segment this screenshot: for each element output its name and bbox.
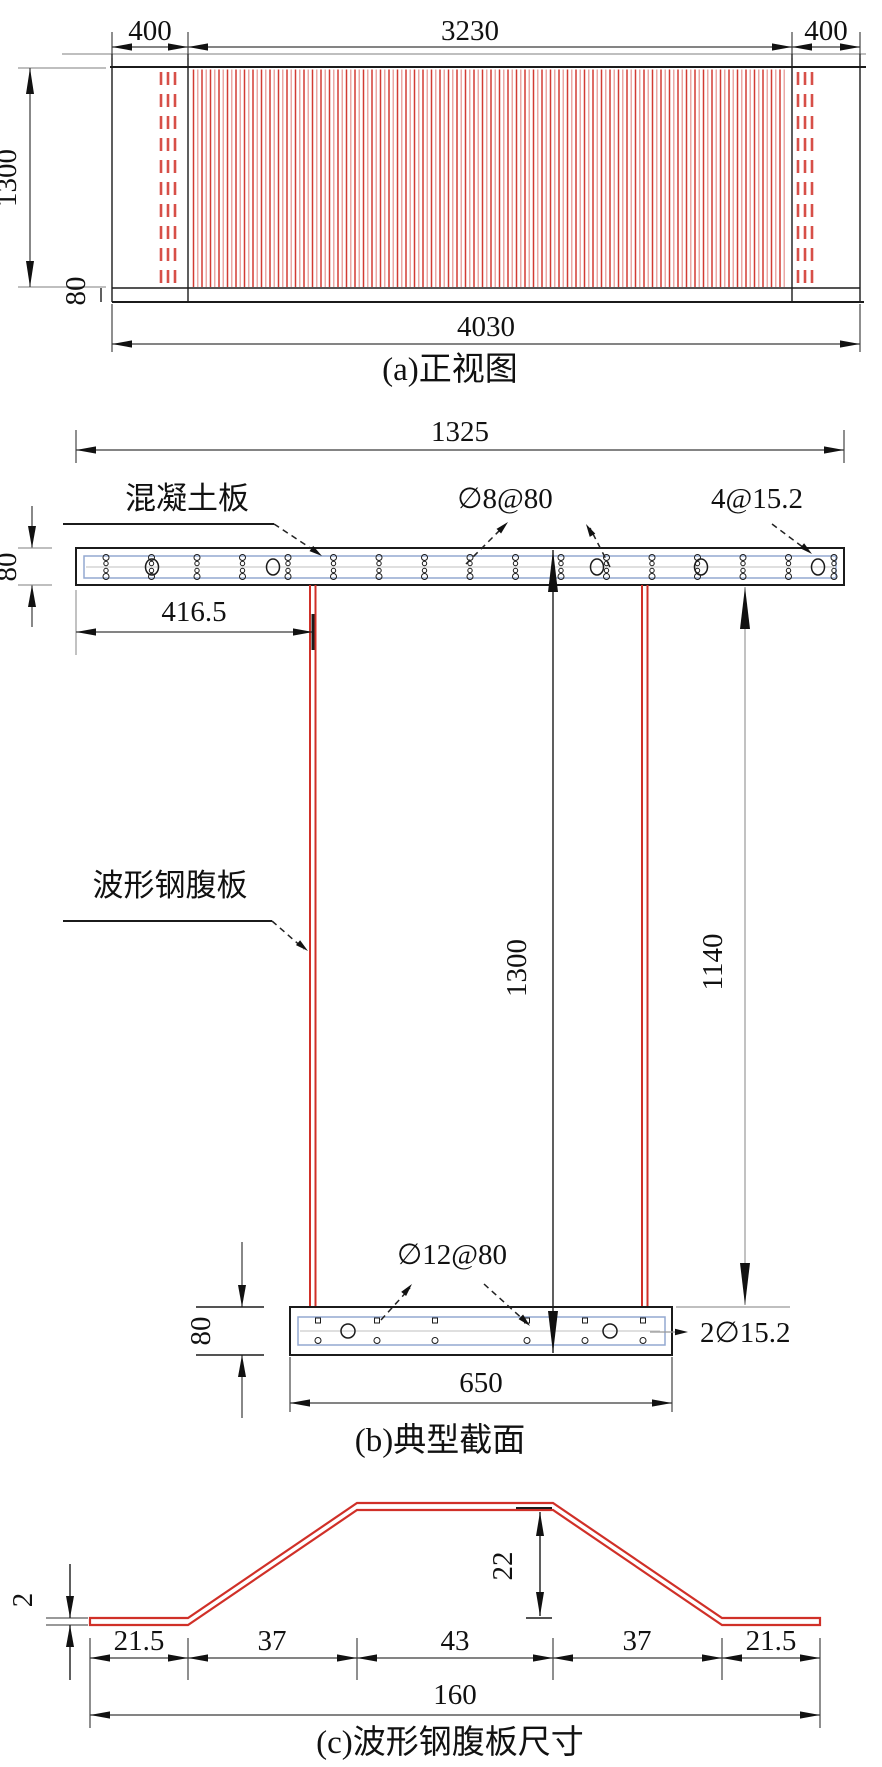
dim-overhang-right: 400 <box>804 15 848 47</box>
dim-plate-thickness: 2 <box>7 1593 39 1608</box>
dim-total-width: 160 <box>433 1679 477 1711</box>
caption-c: (c)波形钢腹板尺寸 <box>316 1724 584 1761</box>
corrugation-profile <box>90 1503 820 1625</box>
dim-flange-thickness: 80 <box>185 1317 217 1346</box>
corrugated-web-hatch <box>194 70 785 288</box>
panel-b-cross-section: 1325 混凝土板 ∅8@80 4@15.2 80 416.5 波形钢 <box>0 416 844 1459</box>
caption-a: (a)正视图 <box>382 352 518 388</box>
dim-total-length: 4030 <box>457 311 515 343</box>
dim-flange: 80 <box>60 277 92 306</box>
technical-drawing: 400 3230 400 1300 80 4030 (a)正视图 1325 混凝… <box>0 0 882 1767</box>
dim-seg-3: 43 <box>441 1625 470 1657</box>
dim-span: 3230 <box>441 15 499 47</box>
dim-height: 1300 <box>0 149 23 207</box>
dim-seg-5: 21.5 <box>746 1625 797 1657</box>
dim-web-offset: 416.5 <box>161 596 226 628</box>
dim-seg-2: 37 <box>258 1625 287 1657</box>
dim-web-height: 1140 <box>697 934 729 991</box>
dim-seg-4: 37 <box>623 1625 652 1657</box>
label-concrete-slab: 混凝土板 <box>125 481 249 516</box>
dim-slab-width: 1325 <box>431 416 489 448</box>
caption-b: (b)典型截面 <box>355 1422 525 1459</box>
label-top-strands: 4@15.2 <box>711 483 803 515</box>
label-bottom-rebar: ∅12@80 <box>397 1239 507 1271</box>
dim-flange-width: 650 <box>459 1367 503 1399</box>
dim-wave-height: 22 <box>487 1552 519 1581</box>
panel-c-corrugation-profile: 22 2 21.5 37 43 37 21.5 160 (c)波形钢腹板尺寸 <box>7 1503 820 1761</box>
figure-page: 400 3230 400 1300 80 4030 (a)正视图 1325 混凝… <box>0 0 882 1767</box>
panel-a-front-view: 400 3230 400 1300 80 4030 (a)正视图 <box>0 15 866 388</box>
dim-slab-thickness: 80 <box>0 553 23 582</box>
label-bottom-strands: 2∅15.2 <box>700 1317 791 1349</box>
dim-seg-1: 21.5 <box>114 1625 165 1657</box>
label-corrugated-web: 波形钢腹板 <box>93 868 248 903</box>
dim-total-height: 1300 <box>501 939 533 997</box>
dim-overhang-left: 400 <box>128 15 172 47</box>
label-top-rebar: ∅8@80 <box>457 483 552 515</box>
